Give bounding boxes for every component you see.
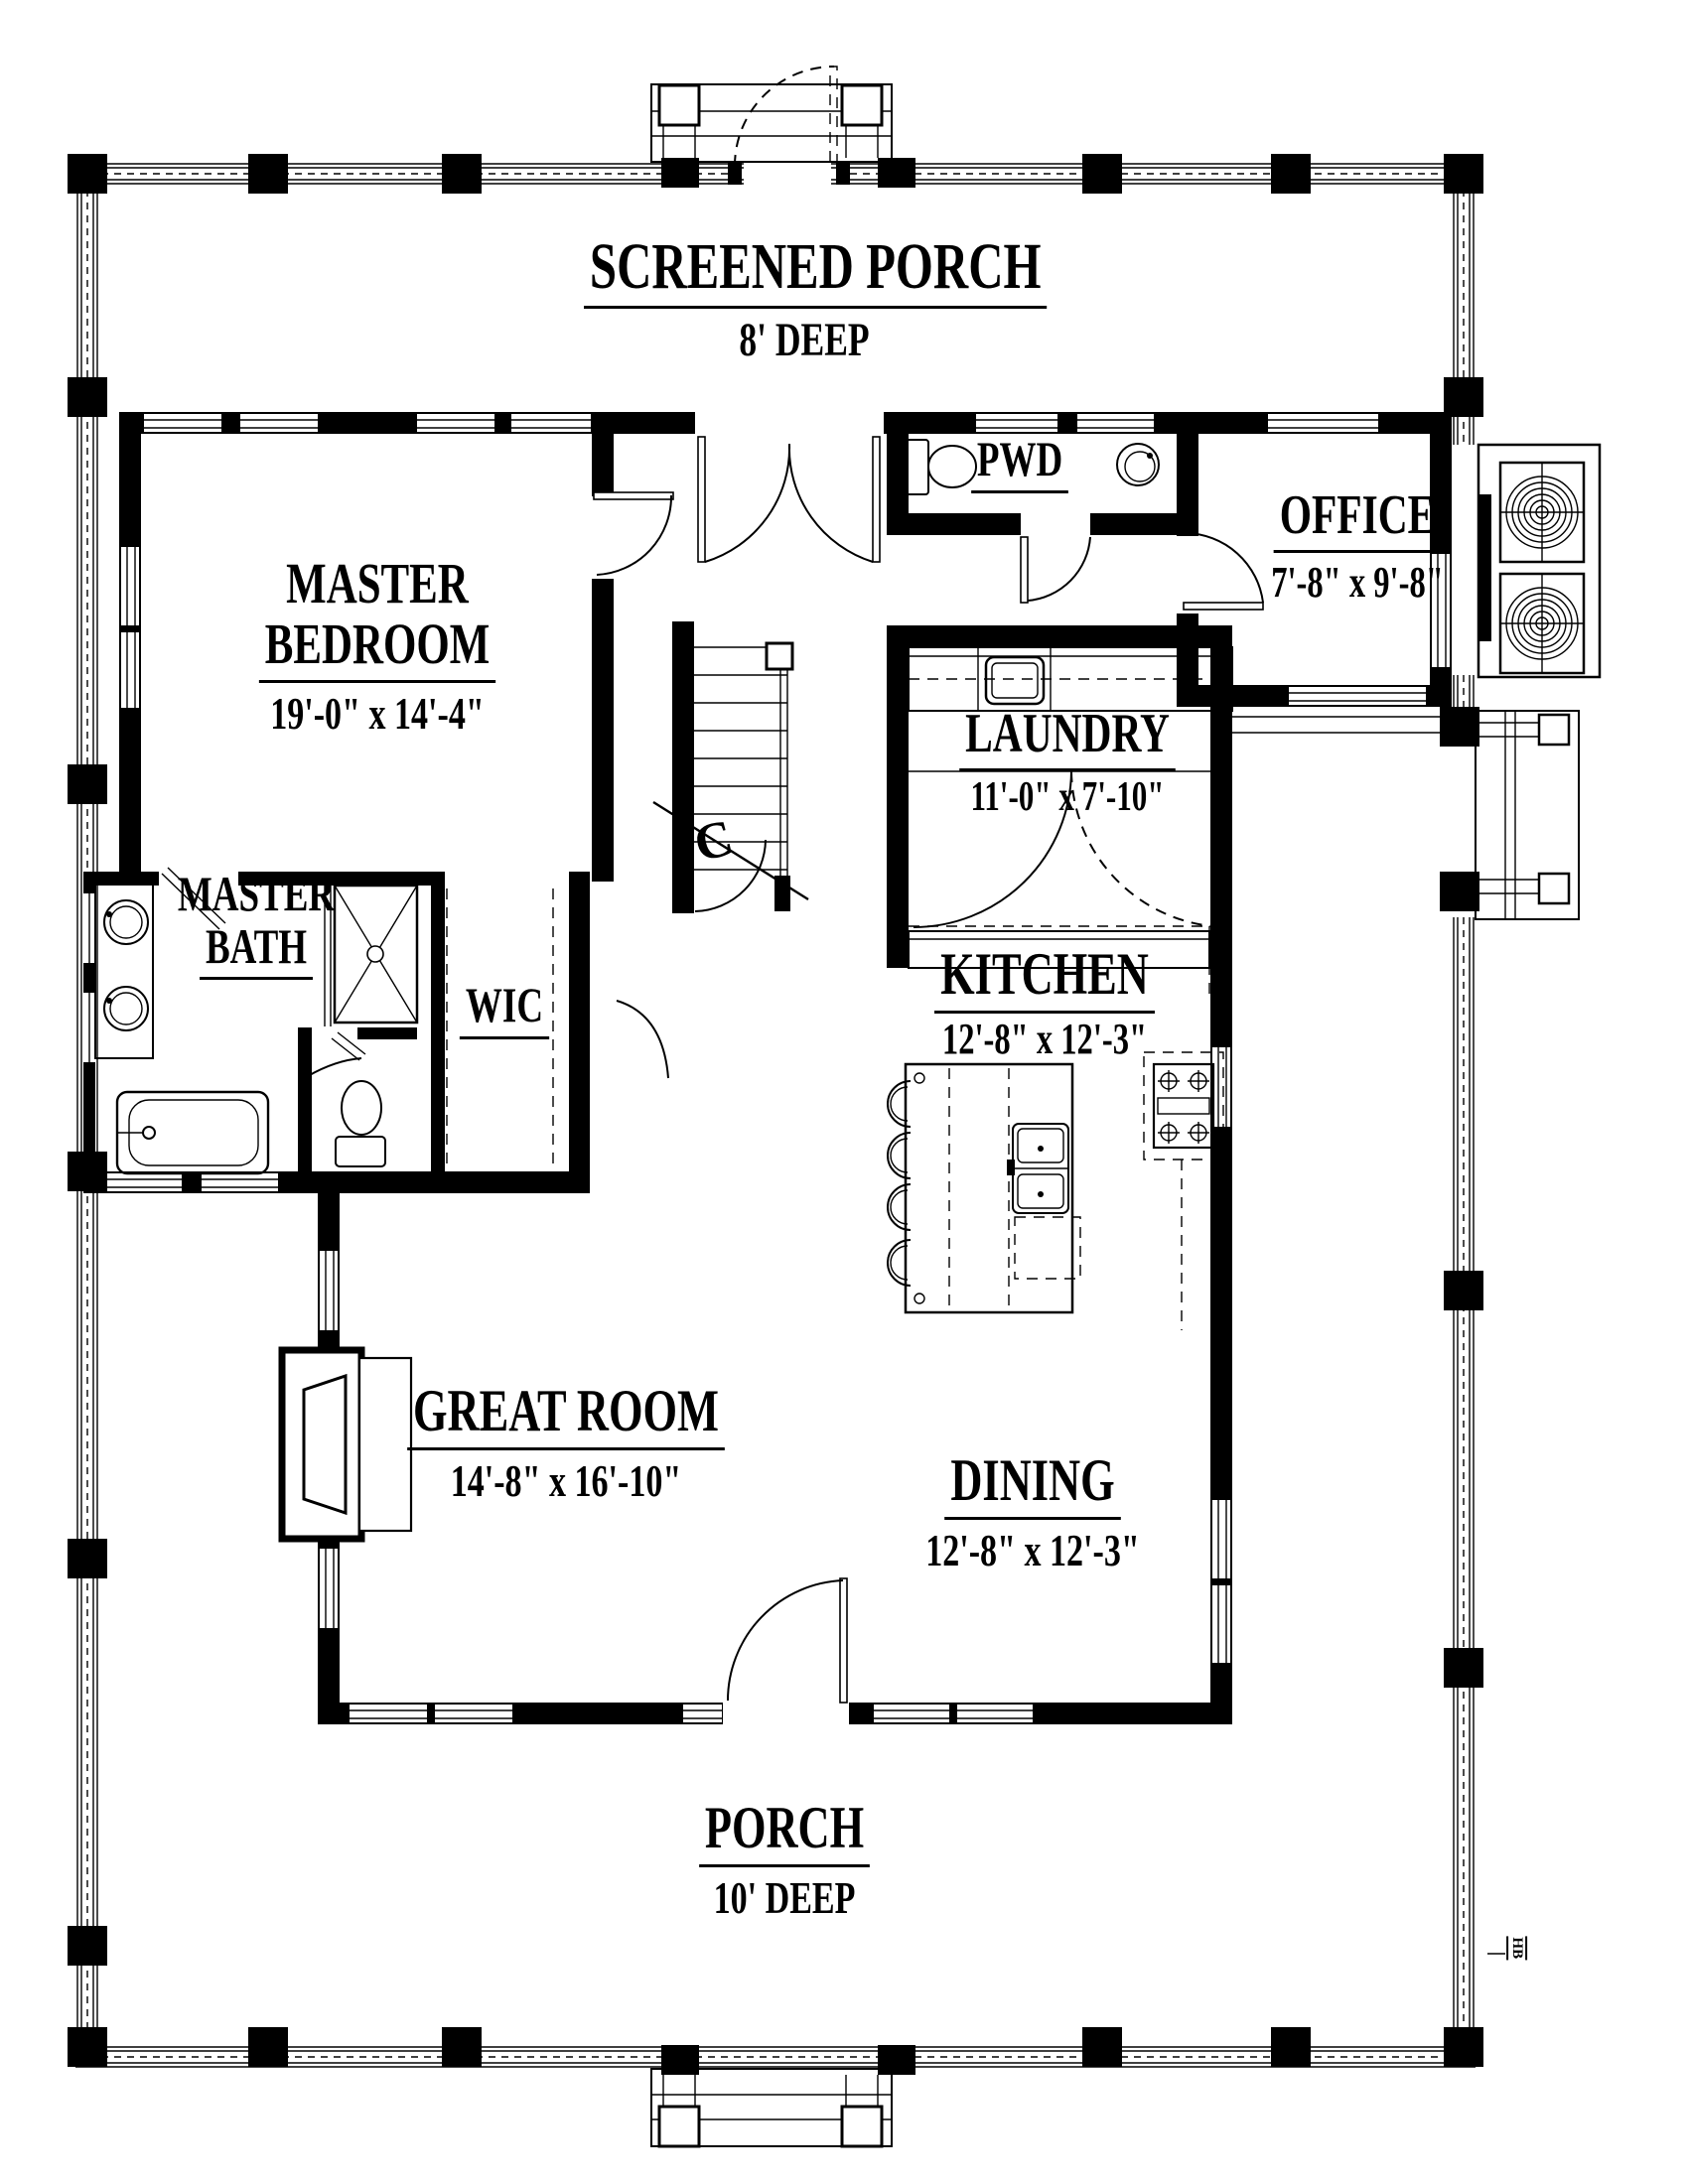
room-label-master-bath: MASTER BATH — [36, 868, 477, 980]
room-name: PWD — [971, 433, 1068, 493]
room-dims: 7'-8" x 9'-8" — [1137, 560, 1578, 606]
screen-door-swing — [735, 67, 834, 166]
porch-posts — [68, 154, 1483, 2075]
room-label-great-room: GREAT ROOM 14'-8" x 16'-10" — [346, 1380, 786, 1505]
room-label-wic: WIC — [284, 979, 725, 1039]
room-dims: 10' DEEP — [564, 1874, 1005, 1922]
pwd-door-swing — [1028, 537, 1090, 601]
room-name-line2: BEDROOM — [259, 614, 495, 683]
entry-stoop-bottom — [651, 2069, 892, 2146]
room-label-laundry: LAUNDRY 11'-0" x 7'-10" — [847, 705, 1288, 819]
dishwasher — [1015, 1217, 1080, 1279]
room-name: WIC — [460, 979, 549, 1039]
side-deck-steps — [1476, 711, 1579, 919]
room-name: OFFICE — [1274, 486, 1441, 553]
room-name: LAUNDRY — [959, 705, 1176, 771]
room-dims: 8' DEEP — [584, 316, 1025, 365]
room-label-porch: PORCH 10' DEEP — [564, 1797, 1005, 1922]
dining-porch-door-swing — [728, 1580, 843, 1701]
room-label-screened-porch: SCREENED PORCH 8' DEEP — [584, 232, 1025, 366]
floor-plan-sheet: SCREENED PORCH 8' DEEP MASTER BEDROOM 19… — [0, 0, 1688, 2184]
room-dims: 14'-8" x 16'-10" — [346, 1457, 786, 1505]
room-dims: 19'-0" x 14'-4" — [157, 690, 598, 738]
master-bedroom-door-swing — [597, 495, 671, 575]
french-door-swing-left — [705, 444, 789, 562]
bar-stools — [888, 1081, 911, 1286]
porch-rail — [75, 159, 1476, 2067]
room-name: KITCHEN — [934, 943, 1155, 1014]
room-name: PORCH — [699, 1797, 870, 1867]
wc-door-swing — [308, 1058, 361, 1076]
kitchen-island — [906, 1064, 1072, 1312]
room-name: GREAT ROOM — [407, 1380, 725, 1450]
hose-bib-mark: HB — [1507, 1936, 1528, 1960]
room-name: SCREENED PORCH — [584, 232, 1047, 309]
room-dims: 11'-0" x 7'-10" — [847, 775, 1288, 819]
room-name-line2: BATH — [200, 920, 313, 981]
room-label-dining: DINING 12'-8" x 12'-3" — [812, 1449, 1253, 1574]
room-dims: 12'-8" x 12'-3" — [824, 1017, 1265, 1062]
entry-stoop-top — [651, 67, 892, 166]
room-dims: 12'-8" x 12'-3" — [812, 1527, 1253, 1574]
room-label-master-bedroom: MASTER BEDROOM 19'-0" x 14'-4" — [157, 554, 598, 738]
room-name-line1: MASTER — [157, 554, 598, 614]
room-label-office: OFFICE 7'-8" x 9'-8" — [1137, 486, 1578, 606]
room-name: DINING — [944, 1449, 1120, 1520]
room-label-pwd: PWD — [799, 433, 1240, 493]
room-name-line1: MASTER — [36, 868, 477, 920]
room-label-kitchen: KITCHEN 12'-8" x 12'-3" — [824, 943, 1265, 1062]
